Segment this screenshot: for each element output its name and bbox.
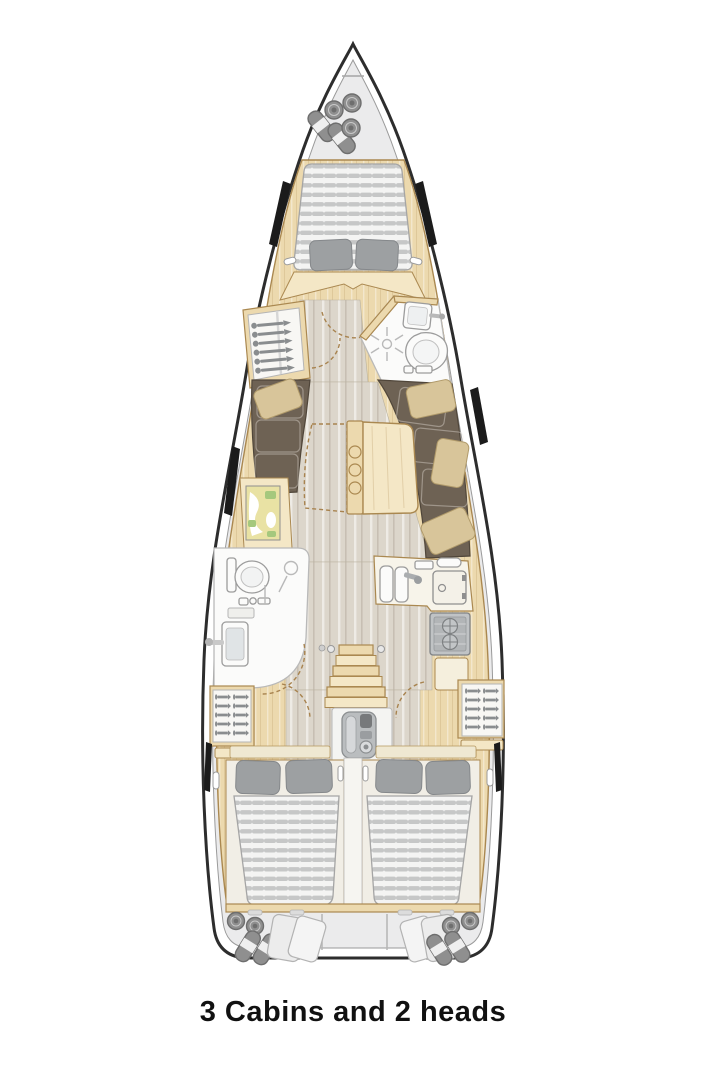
door-latch — [363, 766, 368, 781]
door-latch — [338, 766, 343, 781]
port-aft-cabin — [226, 746, 344, 906]
galley-tray — [437, 558, 461, 567]
plan-caption: 3 Cabins and 2 heads — [0, 996, 706, 1029]
nav-chart-table — [240, 478, 292, 548]
handrail-knob — [378, 646, 385, 653]
yacht-floorplan-page: 3 Cabins and 2 heads — [0, 0, 706, 1080]
starboard-aft-wardrobe — [458, 680, 504, 750]
toilet-accessory — [416, 366, 432, 373]
starboard-aft-cabin — [362, 746, 480, 906]
handrail-knob — [328, 646, 335, 653]
pillow — [285, 759, 332, 794]
table-top — [363, 422, 418, 514]
pillow — [355, 239, 399, 271]
shelf — [228, 608, 254, 618]
galley-tray — [415, 561, 433, 569]
headboard-panel — [376, 746, 476, 758]
step — [336, 656, 376, 666]
pillow — [425, 760, 470, 795]
fridge-icon — [433, 571, 466, 604]
engine-icon — [342, 712, 376, 758]
fitting — [248, 910, 262, 915]
fitting — [290, 910, 304, 915]
pillow — [309, 239, 353, 271]
nautical-chart — [246, 486, 280, 540]
toilet-accessory — [404, 366, 413, 373]
step — [339, 645, 373, 655]
step — [327, 687, 385, 697]
hull-window — [470, 387, 488, 445]
step — [330, 677, 382, 687]
headboard-panel — [230, 746, 330, 758]
yacht-floorplan-diagram — [0, 0, 706, 1080]
double-bed-mattress — [367, 796, 472, 905]
step — [325, 698, 387, 708]
pillow — [375, 759, 422, 794]
door-handle — [319, 645, 325, 651]
step — [333, 666, 379, 676]
pillow — [235, 760, 280, 795]
stove-icon — [430, 613, 470, 655]
fitting — [398, 910, 412, 915]
double-bed-mattress — [234, 796, 339, 905]
hull-latch — [213, 772, 219, 789]
hull-latch — [487, 769, 493, 786]
